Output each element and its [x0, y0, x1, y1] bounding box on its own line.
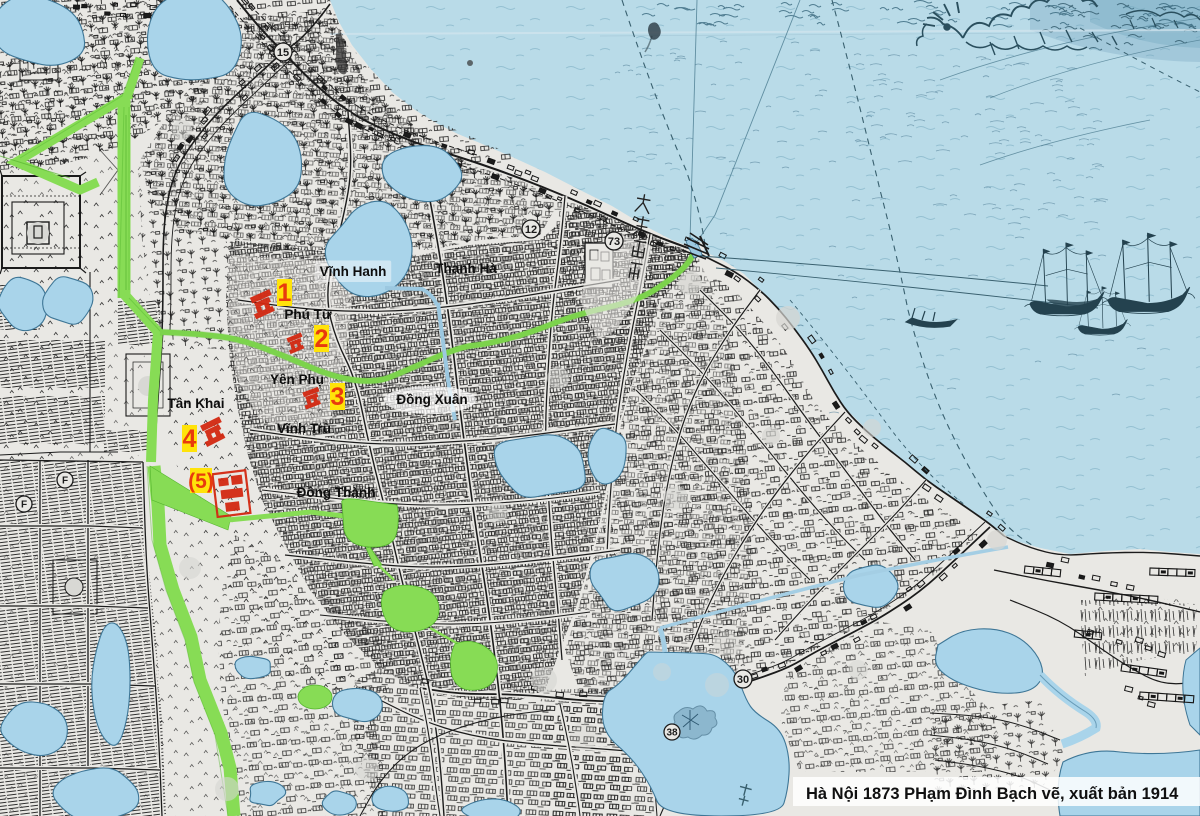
svg-text:3: 3: [331, 383, 345, 411]
svg-text:Phú Từ: Phú Từ: [284, 307, 331, 322]
svg-text:15: 15: [277, 47, 289, 59]
svg-text:30: 30: [737, 674, 749, 686]
svg-text:4: 4: [183, 425, 197, 453]
svg-text:38: 38: [666, 728, 678, 739]
svg-text:(5): (5): [188, 470, 214, 493]
svg-text:Đồng Thành: Đồng Thành: [297, 485, 376, 500]
svg-text:F: F: [62, 476, 68, 487]
svg-text:Tân Khai: Tân Khai: [167, 396, 224, 411]
svg-text:Yên Phụ: Yên Phụ: [270, 372, 324, 387]
svg-text:1: 1: [278, 279, 292, 307]
svg-text:Hà Nội 1873 PHạm Đình Bạch vẽ,: Hà Nội 1873 PHạm Đình Bạch vẽ, xuất bản …: [806, 785, 1179, 803]
svg-text:73: 73: [608, 236, 620, 248]
svg-text:Thanh Hà: Thanh Hà: [435, 261, 497, 276]
svg-text:F: F: [21, 500, 27, 511]
svg-text:2: 2: [315, 325, 329, 353]
svg-text:Vĩnh Trù: Vĩnh Trù: [277, 421, 331, 436]
svg-text:Vĩnh Hanh: Vĩnh Hanh: [320, 264, 387, 279]
svg-text:12: 12: [525, 224, 537, 236]
svg-text:Đồng Xuân: Đồng Xuân: [396, 392, 467, 407]
